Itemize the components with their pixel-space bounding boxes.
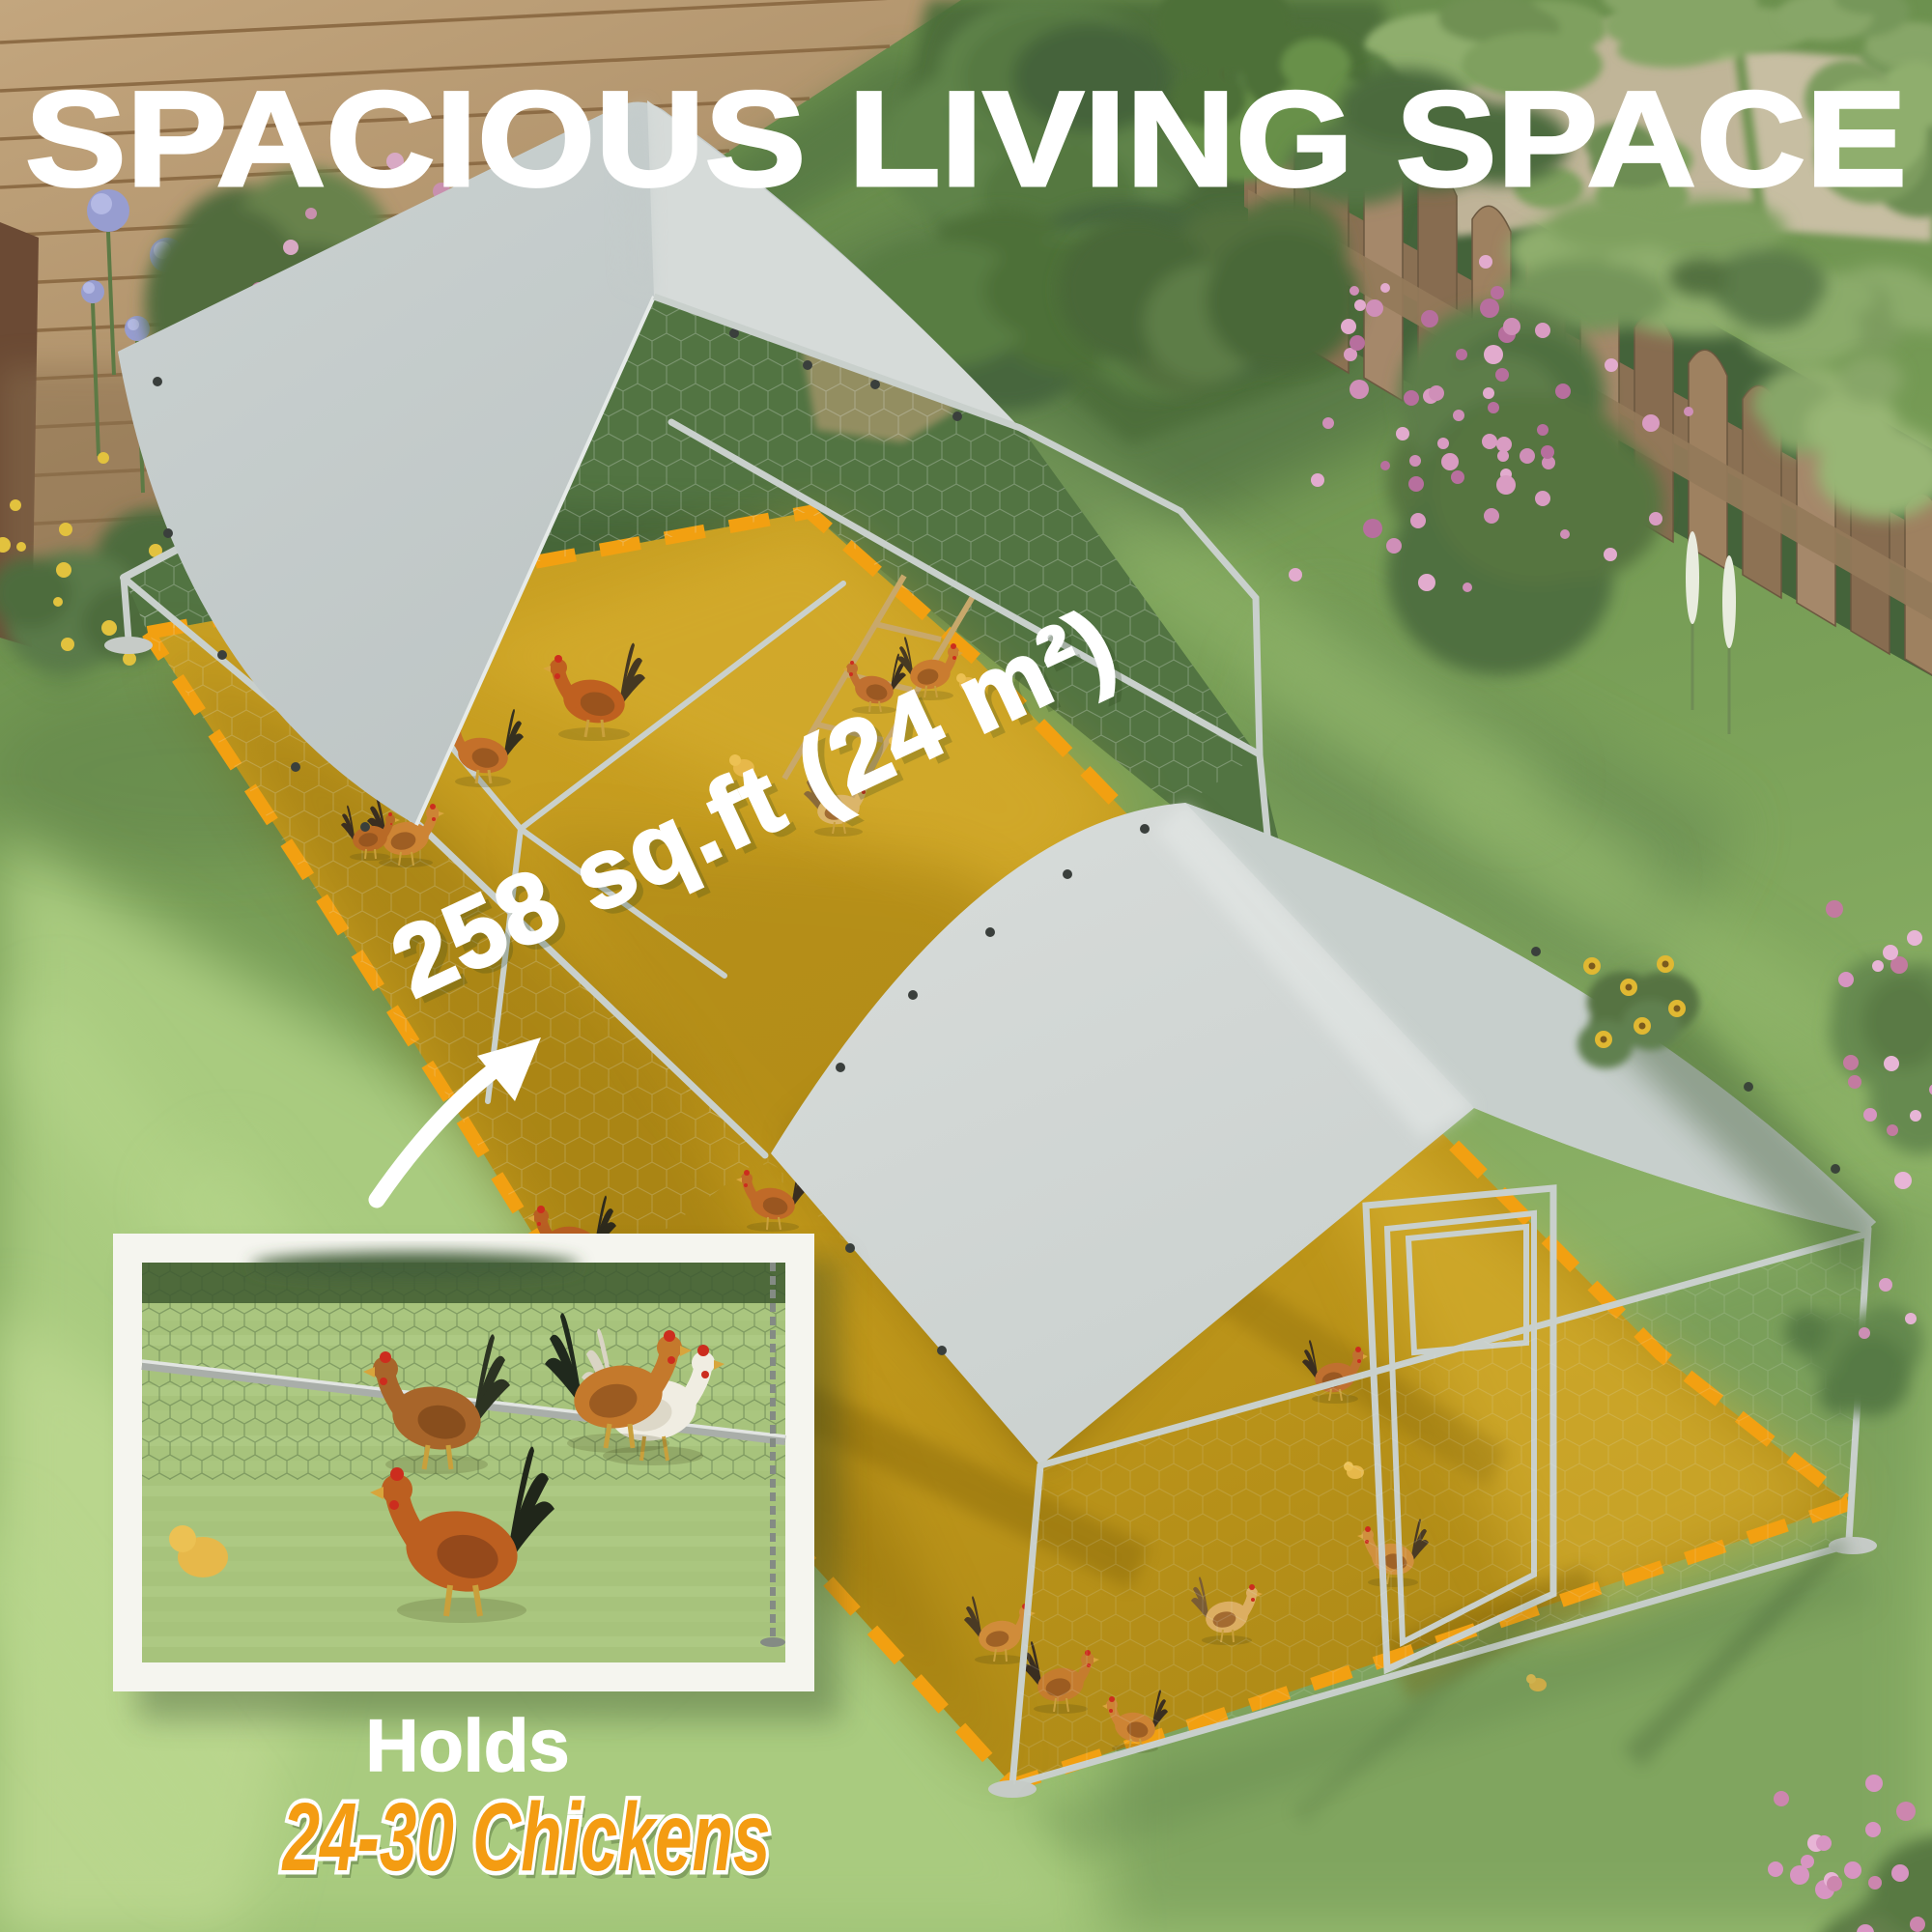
svg-text:Holds: Holds	[365, 1705, 569, 1787]
svg-text:SPACIOUS LIVING SPACE: SPACIOUS LIVING SPACE	[25, 63, 1907, 214]
svg-text:24-30 Chickens: 24-30 Chickens	[281, 1783, 770, 1891]
